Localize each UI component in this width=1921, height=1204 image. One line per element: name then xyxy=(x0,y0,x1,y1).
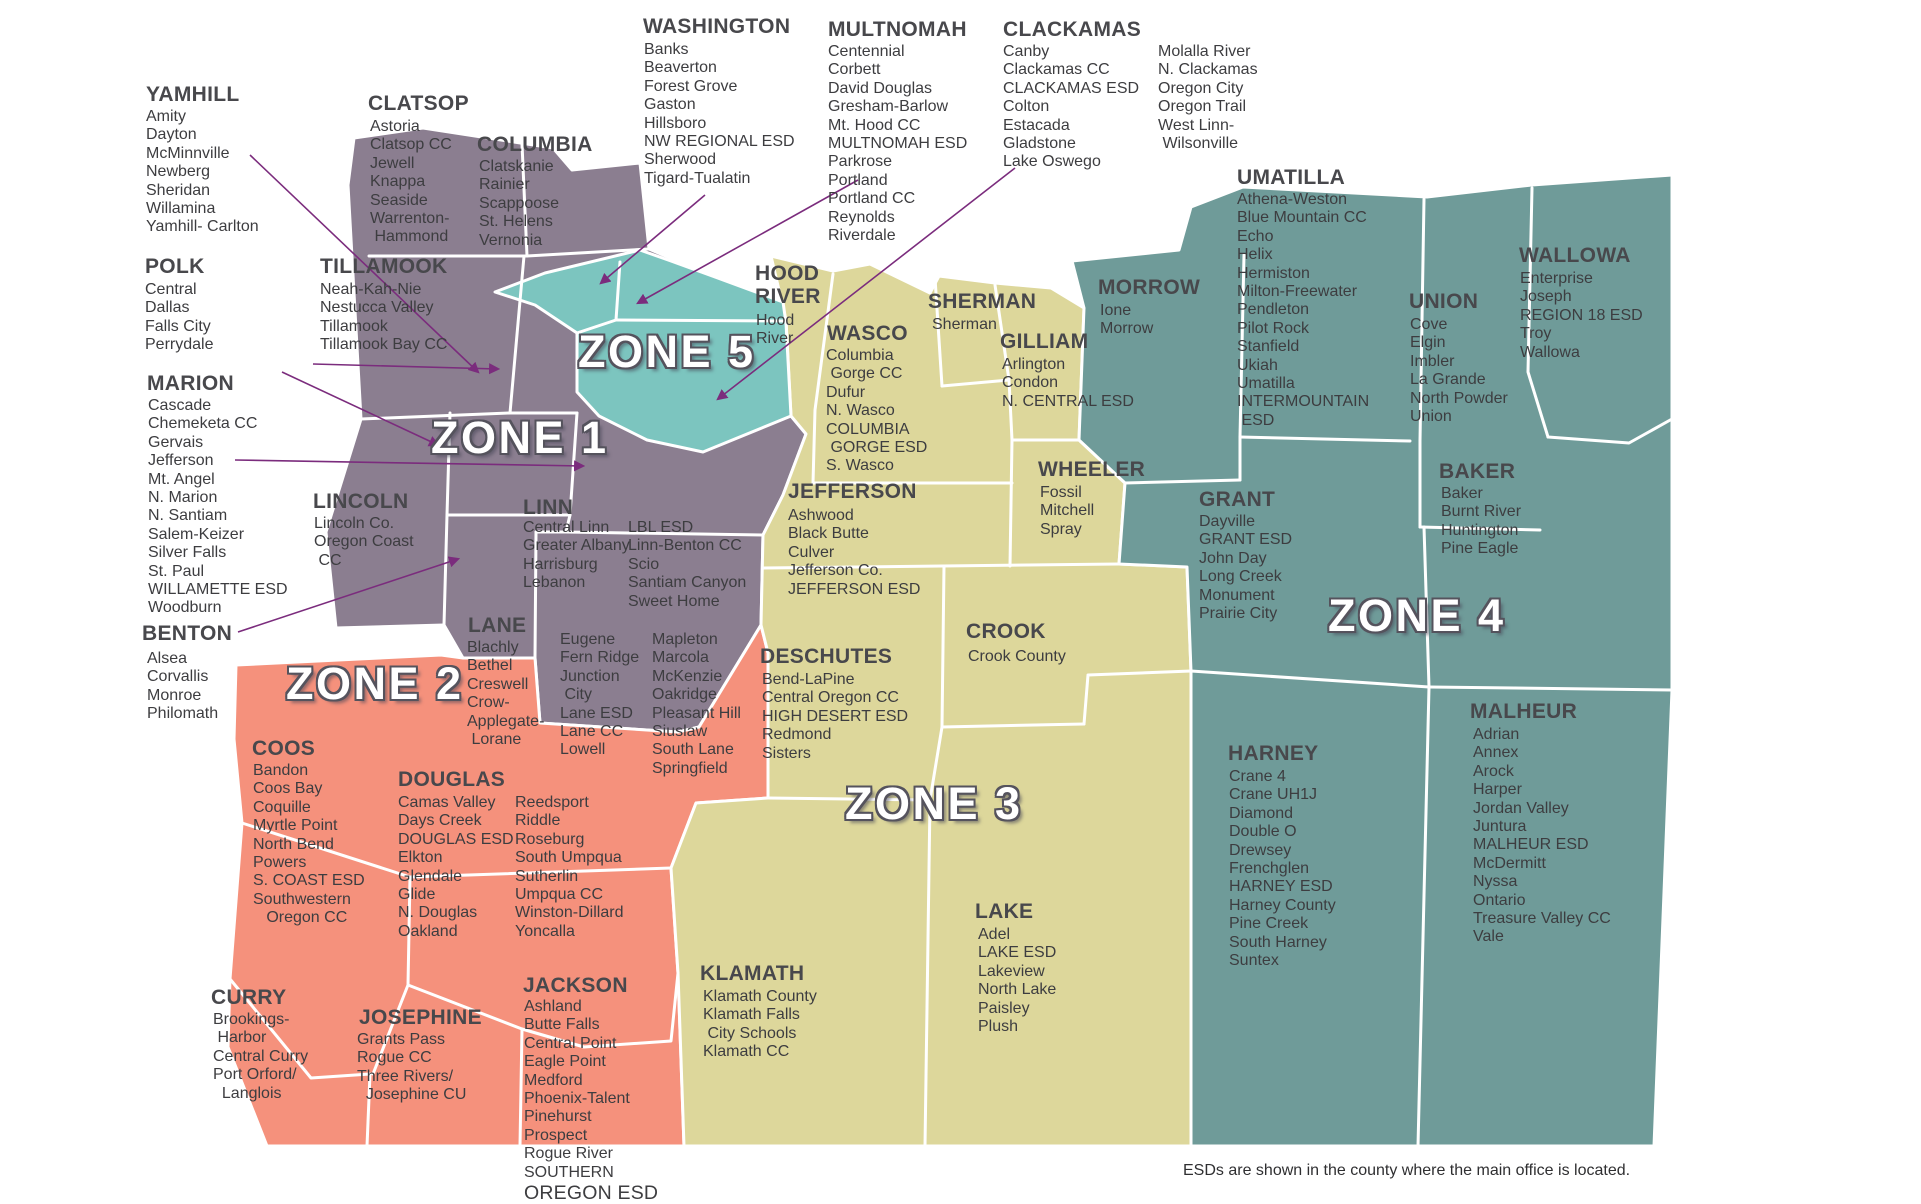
district-name: Ione xyxy=(1100,302,1153,320)
county-name-linn: LINN xyxy=(523,496,573,519)
district-name: Applegate- xyxy=(467,713,544,731)
district-name: Pinehurst xyxy=(524,1108,658,1126)
district-name: Butte Falls xyxy=(524,1016,658,1034)
district-name: Helix xyxy=(1237,246,1369,264)
district-name: Clackamas CC xyxy=(1003,61,1139,79)
county-name-wallowa: WALLOWA xyxy=(1519,244,1631,267)
district-name: Myrtle Point xyxy=(253,817,365,835)
district-name: Prospect xyxy=(524,1127,658,1145)
district-name: Imbler xyxy=(1410,353,1508,371)
county-border-line xyxy=(1010,440,1012,566)
district-name: Milton-Freewater xyxy=(1237,283,1369,301)
district-name: Wilsonville xyxy=(1158,135,1258,153)
county-name-harney: HARNEY xyxy=(1228,742,1318,765)
footnote: ESDs are shown in the county where the m… xyxy=(1183,1162,1630,1180)
county-name-clackamas: CLACKAMAS xyxy=(1003,18,1141,41)
district-list: DayvilleGRANT ESDJohn DayLong CreekMonum… xyxy=(1199,513,1292,623)
district-name: S. COAST ESD xyxy=(253,872,365,890)
county-border-line xyxy=(520,1029,522,1146)
county-name-yamhill: YAMHILL xyxy=(146,83,240,106)
district-name: Burnt River xyxy=(1441,503,1521,521)
district-name: Annex xyxy=(1473,744,1611,762)
county-name-multnomah: MULTNOMAH xyxy=(828,18,967,41)
district-name: Tillamook xyxy=(320,318,447,336)
district-name: Fossil xyxy=(1040,484,1094,502)
district-name: La Grande xyxy=(1410,371,1508,389)
district-name: Roseburg xyxy=(515,831,623,849)
district-name: Three Rivers/ xyxy=(357,1068,466,1086)
district-name: Lane ESD xyxy=(560,705,639,723)
county-name-coos: COOS xyxy=(252,737,315,760)
district-name: N. CENTRAL ESD xyxy=(1002,393,1134,411)
district-name: Phoenix-Talent xyxy=(524,1090,658,1108)
district-name: HIGH DESERT ESD xyxy=(762,708,908,726)
district-name: Spray xyxy=(1040,521,1094,539)
district-name: Oregon Trail xyxy=(1158,98,1258,116)
district-name: Umpqua CC xyxy=(515,886,623,904)
district-name: Sherwood xyxy=(644,151,795,169)
district-name: Enterprise xyxy=(1520,270,1643,288)
district-name: Blachly xyxy=(467,639,544,657)
district-name: Crow- xyxy=(467,694,544,712)
district-name: Hillsboro xyxy=(644,115,795,133)
district-name: CC xyxy=(314,552,414,570)
county-name-deschutes: DESCHUTES xyxy=(760,645,892,668)
district-name: Oregon Coast xyxy=(314,533,414,551)
district-name: Double O xyxy=(1229,823,1336,841)
district-name: Oregon CC xyxy=(253,909,365,927)
district-name: Eugene xyxy=(560,631,639,649)
district-name: David Douglas xyxy=(828,80,967,98)
district-name: Woodburn xyxy=(148,599,288,617)
district-name: Ontario xyxy=(1473,892,1611,910)
district-name: Pine Creek xyxy=(1229,915,1336,933)
district-name: South Umpqua xyxy=(515,849,623,867)
district-list: Athena-WestonBlue Mountain CCEchoHelixHe… xyxy=(1237,191,1369,430)
district-name: Harbor xyxy=(213,1029,308,1047)
district-name: Tigard-Tualatin xyxy=(644,170,795,188)
district-name: Marcola xyxy=(652,649,741,667)
district-name: Falls City xyxy=(145,318,213,336)
district-name: Elgin xyxy=(1410,334,1508,352)
district-list: Lincoln Co.Oregon Coast CC xyxy=(314,515,414,570)
district-name: CLACKAMAS ESD xyxy=(1003,80,1139,98)
district-name: Ukiah xyxy=(1237,357,1369,375)
zone-label-zone-3: ZONE 3 xyxy=(845,778,1023,830)
district-name: Union xyxy=(1410,408,1508,426)
district-name: Vernonia xyxy=(479,232,559,250)
district-name: Riddle xyxy=(515,812,623,830)
district-list: AdelLAKE ESDLakeviewNorth LakePaisleyPlu… xyxy=(978,926,1056,1036)
district-name: JEFFERSON ESD xyxy=(788,581,920,599)
district-name: Southwestern xyxy=(253,891,365,909)
district-name: Clatskanie xyxy=(479,158,559,176)
district-name: Knappa xyxy=(370,173,452,191)
district-name: Crane UH1J xyxy=(1229,786,1336,804)
district-name: Perrydale xyxy=(145,336,213,354)
district-name: GRANT ESD xyxy=(1199,531,1292,549)
district-name: Port Orford/ xyxy=(213,1066,308,1084)
district-list: CoveElginImblerLa GrandeNorth PowderUnio… xyxy=(1410,316,1508,426)
district-name: Redmond xyxy=(762,726,908,744)
district-name: West Linn- xyxy=(1158,117,1258,135)
district-name: Langlois xyxy=(213,1085,308,1103)
county-name-morrow: MORROW xyxy=(1098,276,1200,299)
county-name-klamath: KLAMATH xyxy=(700,962,804,985)
district-list: CascadeChemeketa CCGervaisJeffersonMt. A… xyxy=(148,397,288,618)
district-name: Plush xyxy=(978,1018,1056,1036)
district-name: Lake Oswego xyxy=(1003,153,1139,171)
district-name: Oakridge xyxy=(652,686,741,704)
district-name: Klamath County xyxy=(703,988,817,1006)
district-name: Suntex xyxy=(1229,952,1336,970)
district-name: Paisley xyxy=(978,1000,1056,1018)
district-name: City Schools xyxy=(703,1025,817,1043)
district-name: N. Clackamas xyxy=(1158,61,1258,79)
district-name: Molalla River xyxy=(1158,43,1258,61)
district-list: IoneMorrow xyxy=(1100,302,1153,339)
district-name: Coos Bay xyxy=(253,780,365,798)
county-name-douglas: DOUGLAS xyxy=(398,768,505,791)
district-name: Diamond xyxy=(1229,805,1336,823)
district-name: Jefferson xyxy=(148,452,288,470)
county-name-sherman: SHERMAN xyxy=(928,290,1036,313)
county-name-jeffer-son: JEFFERSON xyxy=(788,480,917,503)
district-name: Lowell xyxy=(560,741,639,759)
district-name: Central Point xyxy=(524,1035,658,1053)
district-list: BandonCoos BayCoquilleMyrtle PointNorth … xyxy=(253,762,365,928)
district-list: ClatskanieRainierScappooseSt. HelensVern… xyxy=(479,158,559,250)
district-name: Athena-Weston xyxy=(1237,191,1369,209)
district-name: N. Wasco xyxy=(826,402,927,420)
district-name: Black Butte xyxy=(788,525,920,543)
district-name: Pleasant Hill xyxy=(652,705,741,723)
district-name: Bend-LaPine xyxy=(762,671,908,689)
district-list: Columbia Gorge CCDufurN. WascoCOLUMBIA G… xyxy=(826,347,927,476)
oregon-school-zones-map: CLATSOPAstoriaClatsop CCJewellKnappaSeas… xyxy=(0,0,1921,1201)
county-name-polk: POLK xyxy=(145,255,205,278)
district-name: Klamath CC xyxy=(703,1043,817,1061)
district-name: Glendale xyxy=(398,868,514,886)
district-list: ArlingtonCondonN. CENTRAL ESD xyxy=(1002,356,1134,411)
district-name: Klamath Falls xyxy=(703,1006,817,1024)
district-list: AlseaCorvallisMonroePhilomath xyxy=(147,650,218,724)
district-name: Wallowa xyxy=(1520,344,1643,362)
district-name: Neah-Kah-Nie xyxy=(320,281,447,299)
district-name: Days Creek xyxy=(398,812,514,830)
district-name: Alsea xyxy=(147,650,218,668)
district-name: Elkton xyxy=(398,849,514,867)
district-name: Treasure Valley CC xyxy=(1473,910,1611,928)
district-name: Jewell xyxy=(370,155,452,173)
district-name: Centennial xyxy=(828,43,967,61)
district-name: Cascade xyxy=(148,397,288,415)
district-list: BlachlyBethelCreswellCrow-Applegate- Lor… xyxy=(467,639,544,749)
county-name-marion: MARION xyxy=(147,372,234,395)
district-name: Arlington xyxy=(1002,356,1134,374)
district-name: OREGON ESD xyxy=(524,1184,658,1202)
district-name: Huntington xyxy=(1441,522,1521,540)
district-name: Parkrose xyxy=(828,153,967,171)
district-name: Reynolds xyxy=(828,209,967,227)
district-name: Cove xyxy=(1410,316,1508,334)
district-list: LBL ESDLinn-Benton CCScioSantiam CanyonS… xyxy=(628,519,746,611)
district-name: South Harney xyxy=(1229,934,1336,952)
district-name: Central Curry xyxy=(213,1048,308,1066)
district-list: AstoriaClatsop CCJewellKnappaSeasideWarr… xyxy=(370,118,452,247)
district-list: EnterpriseJosephREGION 18 ESDTroyWallowa xyxy=(1520,270,1643,362)
district-name: Frenchglen xyxy=(1229,860,1336,878)
district-name: Hermiston xyxy=(1237,265,1369,283)
district-name: Vale xyxy=(1473,928,1611,946)
district-name: Lorane xyxy=(467,731,544,749)
county-name-lincoln: LINCOLN xyxy=(313,490,408,513)
district-name: Gaston xyxy=(644,96,795,114)
district-list: BakerBurnt RiverHuntingtonPine Eagle xyxy=(1441,485,1521,559)
district-name: Medford xyxy=(524,1072,658,1090)
district-name: Hood xyxy=(756,312,794,330)
district-name: MALHEUR ESD xyxy=(1473,836,1611,854)
district-name: Mt. Hood CC xyxy=(828,117,967,135)
district-name: REGION 18 ESD xyxy=(1520,307,1643,325)
district-name: Gorge CC xyxy=(826,365,927,383)
district-name: Central xyxy=(145,281,213,299)
district-list: Crook County xyxy=(968,648,1066,666)
district-name: Canby xyxy=(1003,43,1139,61)
district-list: FossilMitchellSpray xyxy=(1040,484,1094,539)
district-name: COLUMBIA xyxy=(826,421,927,439)
district-name: Joseph xyxy=(1520,288,1643,306)
district-name: Monument xyxy=(1199,587,1292,605)
district-list: AmityDaytonMcMinnvilleNewbergSheridanWil… xyxy=(146,108,259,237)
district-name: Brookings- xyxy=(213,1011,308,1029)
district-name: Harrisburg xyxy=(523,556,630,574)
county-name-hoodriver: HOOD RIVER xyxy=(755,262,821,308)
district-name: River xyxy=(756,330,794,348)
district-name: Adrian xyxy=(1473,726,1611,744)
county-name-tillamook: TILLAMOOK xyxy=(320,255,448,278)
district-name: Mapleton xyxy=(652,631,741,649)
district-name: Forest Grove xyxy=(644,78,795,96)
district-name: Lebanon xyxy=(523,574,630,592)
district-name: Adel xyxy=(978,926,1056,944)
district-name: Riverdale xyxy=(828,227,967,245)
district-name: North Lake xyxy=(978,981,1056,999)
district-name: Greater Albany xyxy=(523,537,630,555)
district-name: Bandon xyxy=(253,762,365,780)
district-name: North Bend xyxy=(253,836,365,854)
district-name: McKenzie xyxy=(652,668,741,686)
district-name: Glide xyxy=(398,886,514,904)
district-name: NW REGIONAL ESD xyxy=(644,133,795,151)
district-name: Stanfield xyxy=(1237,338,1369,356)
district-name: Central Oregon CC xyxy=(762,689,908,707)
district-name: Jordan Valley xyxy=(1473,800,1611,818)
district-list: Grants PassRogue CCThree Rivers/ Josephi… xyxy=(357,1031,466,1105)
district-name: Sutherlin xyxy=(515,868,623,886)
district-name: N. Santiam xyxy=(148,507,288,525)
district-name: Lincoln Co. xyxy=(314,515,414,533)
district-name: City xyxy=(560,686,639,704)
district-name: Gervais xyxy=(148,434,288,452)
county-name-lake: LAKE xyxy=(975,900,1033,923)
district-name: Sweet Home xyxy=(628,593,746,611)
district-name: Corbett xyxy=(828,61,967,79)
district-list: Crane 4Crane UH1JDiamondDouble ODrewseyF… xyxy=(1229,768,1336,970)
district-name: GORGE ESD xyxy=(826,439,927,457)
district-name: Clatsop CC xyxy=(370,136,452,154)
district-name: Scappoose xyxy=(479,195,559,213)
district-name: Baker xyxy=(1441,485,1521,503)
district-name: Troy xyxy=(1520,325,1643,343)
district-name: Yoncalla xyxy=(515,923,623,941)
district-name: McMinnville xyxy=(146,145,259,163)
county-name-lane: LANE xyxy=(468,614,526,637)
district-name: Oregon City xyxy=(1158,80,1258,98)
county-name-curry: CURRY xyxy=(211,986,286,1009)
district-name: Ashland xyxy=(524,998,658,1016)
district-list: ReedsportRiddleRoseburgSouth UmpquaSuthe… xyxy=(515,794,623,941)
district-name: St. Helens xyxy=(479,213,559,231)
district-name: Crane 4 xyxy=(1229,768,1336,786)
district-name: Seaside xyxy=(370,192,452,210)
county-name-umatilla: UMATILLA xyxy=(1237,166,1345,189)
district-name: Beaverton xyxy=(644,59,795,77)
district-name: Long Creek xyxy=(1199,568,1292,586)
district-list: AdrianAnnexArockHarperJordan ValleyJuntu… xyxy=(1473,726,1611,947)
district-list: CentennialCorbettDavid DouglasGresham-Ba… xyxy=(828,43,967,245)
district-list: Bend-LaPineCentral Oregon CCHIGH DESERT … xyxy=(762,671,908,763)
district-name: Yamhill- Carlton xyxy=(146,218,259,236)
district-name: Eagle Point xyxy=(524,1053,658,1071)
district-name: Reedsport xyxy=(515,794,623,812)
district-list: EugeneFern RidgeJunction CityLane ESDLan… xyxy=(560,631,639,760)
district-name: Oakland xyxy=(398,923,514,941)
district-name: Rogue River xyxy=(524,1145,658,1163)
district-name: Morrow xyxy=(1100,320,1153,338)
district-list: Brookings- HarborCentral CurryPort Orfor… xyxy=(213,1011,308,1103)
district-name: Banks xyxy=(644,41,795,59)
district-list: Central LinnGreater AlbanyHarrisburgLeba… xyxy=(523,519,630,593)
district-name: Arock xyxy=(1473,763,1611,781)
district-name: Bethel xyxy=(467,657,544,675)
district-name: N. Douglas xyxy=(398,904,514,922)
district-name: Portland CC xyxy=(828,190,967,208)
district-list: MapletonMarcolaMcKenzieOakridgePleasant … xyxy=(652,631,741,778)
district-name: John Day xyxy=(1199,550,1292,568)
county-name-washington: WASHINGTON xyxy=(643,15,790,38)
district-name: South Lane xyxy=(652,741,741,759)
district-name: Juntura xyxy=(1473,818,1611,836)
district-list: AshlandButte FallsCentral PointEagle Poi… xyxy=(524,998,658,1202)
district-name: Rainier xyxy=(479,176,559,194)
district-name: Echo xyxy=(1237,228,1369,246)
district-name: Salem-Keizer xyxy=(148,526,288,544)
district-name: Dayville xyxy=(1199,513,1292,531)
district-name: SOUTHERN xyxy=(524,1164,658,1182)
district-name: Harper xyxy=(1473,781,1611,799)
district-name: Sheridan xyxy=(146,182,259,200)
district-name: Harney County xyxy=(1229,897,1336,915)
county-name-grant: GRANT xyxy=(1199,488,1275,511)
district-name: Dayton xyxy=(146,126,259,144)
district-name: Tillamook Bay CC xyxy=(320,336,447,354)
district-name: Josephine CU xyxy=(357,1086,466,1104)
district-name: Coquille xyxy=(253,799,365,817)
district-name: Lakeview xyxy=(978,963,1056,981)
district-name: Portland xyxy=(828,172,967,190)
county-name-wasco: WASCO xyxy=(827,322,908,345)
district-name: S. Wasco xyxy=(826,457,927,475)
district-name: Sherman xyxy=(932,316,997,334)
county-name-union: UNION xyxy=(1409,290,1478,313)
county-name-gilliam: GILLIAM xyxy=(1000,330,1088,353)
district-name: Jefferson Co. xyxy=(788,562,920,580)
district-list: AshwoodBlack ButteCulverJefferson Co.JEF… xyxy=(788,507,920,599)
district-name: Mt. Angel xyxy=(148,471,288,489)
district-name: Pendleton xyxy=(1237,301,1369,319)
zone-label-zone-1: ZONE 1 xyxy=(431,412,609,464)
district-name: Colton xyxy=(1003,98,1139,116)
district-name: Sisters xyxy=(762,745,908,763)
district-list: CanbyClackamas CCCLACKAMAS ESDColtonEsta… xyxy=(1003,43,1139,172)
district-list: Sherman xyxy=(932,316,997,334)
district-name: WILLAMETTE ESD xyxy=(148,581,288,599)
county-name-baker: BAKER xyxy=(1439,460,1515,483)
district-name: Creswell xyxy=(467,676,544,694)
district-name: Warrenton- xyxy=(370,210,452,228)
district-name: ESD xyxy=(1237,412,1369,430)
county-name-benton: BENTON xyxy=(142,622,232,645)
district-list: Molalla RiverN. ClackamasOregon CityOreg… xyxy=(1158,43,1258,153)
district-name: Astoria xyxy=(370,118,452,136)
district-name: Columbia xyxy=(826,347,927,365)
district-name: DOUGLAS ESD xyxy=(398,831,514,849)
county-border-line xyxy=(942,566,944,727)
county-name-clatsop: CLATSOP xyxy=(368,92,469,115)
district-name: HARNEY ESD xyxy=(1229,878,1336,896)
district-list: BanksBeavertonForest GroveGastonHillsbor… xyxy=(644,41,795,188)
district-name: Prairie City xyxy=(1199,605,1292,623)
district-list: Klamath CountyKlamath Falls City Schools… xyxy=(703,988,817,1062)
zone-label-zone-2: ZONE 2 xyxy=(286,658,464,710)
district-name: Corvallis xyxy=(147,668,218,686)
district-name: Newberg xyxy=(146,163,259,181)
district-name: Monroe xyxy=(147,687,218,705)
district-name: LBL ESD xyxy=(628,519,746,537)
district-name: Chemeketa CC xyxy=(148,415,288,433)
zone-label-zone-4: ZONE 4 xyxy=(1328,590,1506,642)
district-name: Powers xyxy=(253,854,365,872)
district-name: St. Paul xyxy=(148,563,288,581)
district-name: Springfield xyxy=(652,760,741,778)
county-name-jackson: JACKSON xyxy=(523,974,628,997)
district-name: Condon xyxy=(1002,374,1134,392)
district-name: Santiam Canyon xyxy=(628,574,746,592)
district-name: Pine Eagle xyxy=(1441,540,1521,558)
district-name: Gresham-Barlow xyxy=(828,98,967,116)
district-name: Drewsey xyxy=(1229,842,1336,860)
district-name: Crook County xyxy=(968,648,1066,666)
district-name: Amity xyxy=(146,108,259,126)
county-name-wheeler: WHEELER xyxy=(1038,458,1145,481)
district-list: Neah-Kah-NieNestucca ValleyTillamookTill… xyxy=(320,281,447,355)
district-name: Gladstone xyxy=(1003,135,1139,153)
district-name: Nyssa xyxy=(1473,873,1611,891)
zone-label-zone-5: ZONE 5 xyxy=(578,326,756,378)
county-name-columbia: COLUMBIA xyxy=(477,133,593,156)
district-name: Dallas xyxy=(145,299,213,317)
